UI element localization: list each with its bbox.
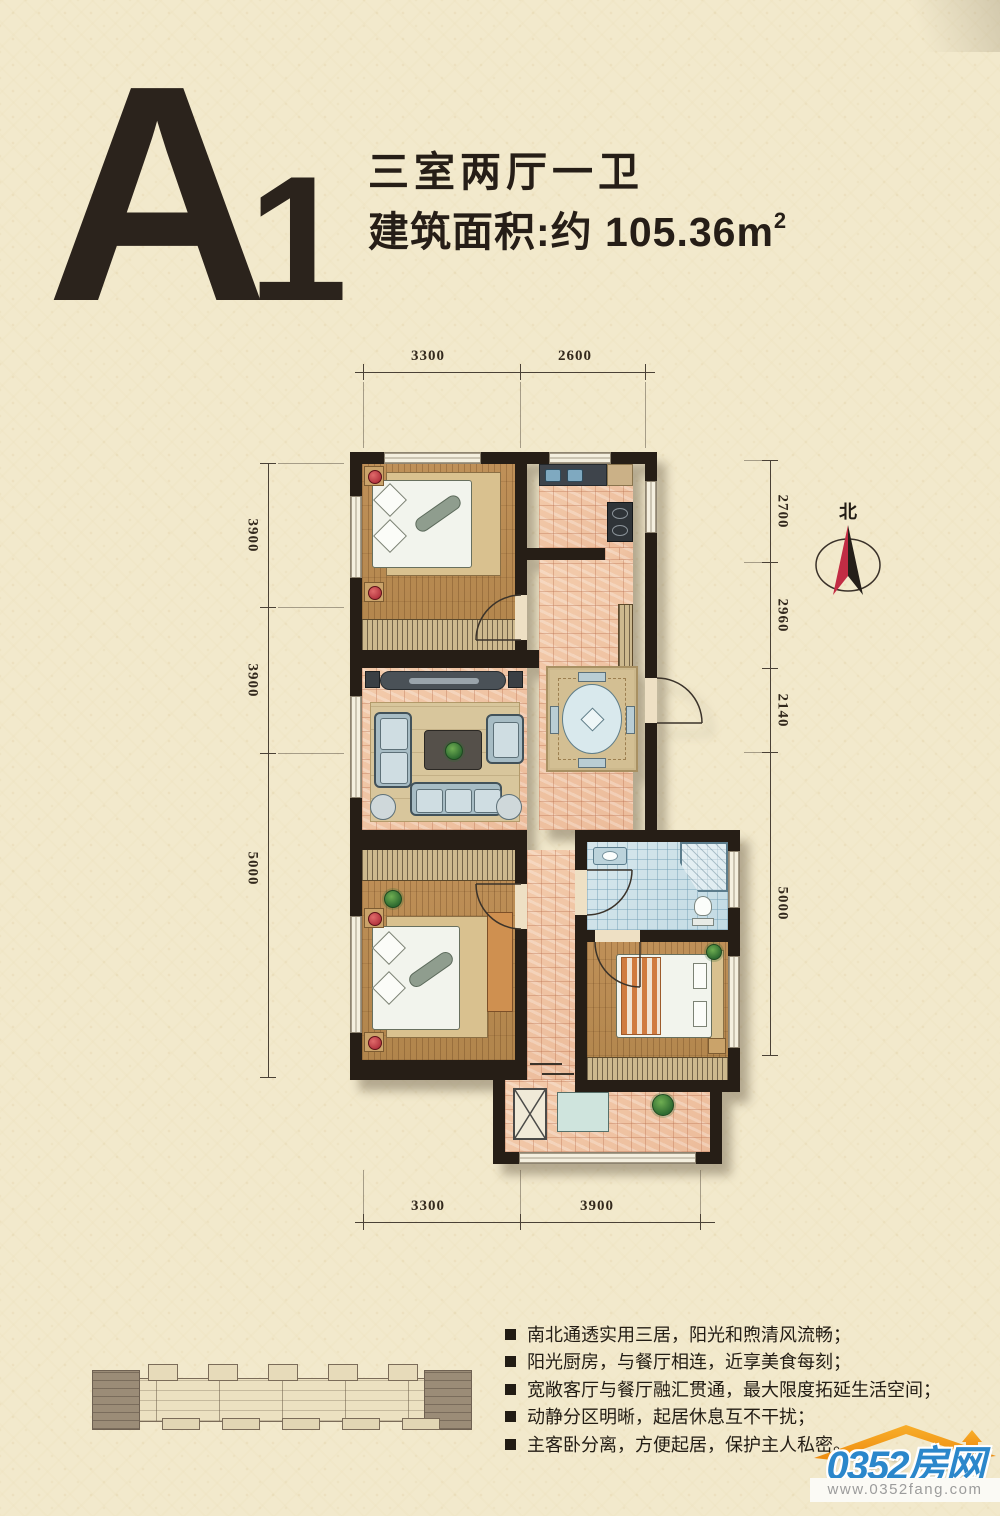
dim-tick bbox=[762, 562, 778, 563]
dim-tick bbox=[260, 1077, 276, 1078]
dim-extension bbox=[363, 382, 364, 448]
dim-extension bbox=[278, 463, 344, 464]
dim-right-3: 2140 bbox=[774, 681, 791, 741]
feature-item: 阳光厨房，与餐厅相连，近享美食每刻； bbox=[505, 1353, 985, 1372]
porch bbox=[342, 1418, 380, 1430]
dim-line-right bbox=[770, 460, 771, 1055]
dim-left-3: 5000 bbox=[244, 839, 261, 899]
dim-extension bbox=[520, 1170, 521, 1216]
porch bbox=[222, 1418, 260, 1430]
floor-plan bbox=[350, 452, 740, 1162]
dim-tick bbox=[645, 364, 646, 380]
compass-north-label: 北 bbox=[808, 503, 888, 521]
building-body bbox=[92, 1378, 472, 1422]
dim-tick bbox=[762, 1055, 778, 1056]
logo-url: www.0352fang.com bbox=[810, 1478, 1000, 1502]
stair-core bbox=[268, 1364, 298, 1381]
stair-core bbox=[388, 1364, 418, 1381]
dim-bottom-2: 3900 bbox=[580, 1198, 614, 1215]
feature-item: 宽敞客厅与餐厅融汇贯通，最大限度拓延生活空间； bbox=[505, 1381, 985, 1400]
dim-extension bbox=[278, 753, 344, 754]
dim-extension bbox=[278, 607, 344, 608]
dim-tick bbox=[260, 463, 276, 464]
building-area: 建筑面积:约 105.36m2 bbox=[368, 198, 787, 258]
feature-text: 南北通透实用三居，阳光和煦清风流畅； bbox=[527, 1326, 851, 1345]
dim-tick bbox=[260, 607, 276, 608]
stair-core bbox=[208, 1364, 238, 1381]
porch bbox=[162, 1418, 200, 1430]
feature-text: 宽敞客厅与餐厅融汇贯通，最大限度拓延生活空间； bbox=[527, 1381, 941, 1400]
square-bullet-icon bbox=[505, 1411, 516, 1422]
dim-right-1: 2700 bbox=[774, 482, 791, 542]
feature-item: 南北通透实用三居，阳光和煦清风流畅； bbox=[505, 1326, 985, 1345]
feature-text: 阳光厨房，与餐厅相连，近享美食每刻； bbox=[527, 1353, 851, 1372]
plan-code-number: 1 bbox=[248, 150, 347, 328]
dim-extension bbox=[700, 1170, 701, 1216]
dim-extension bbox=[744, 752, 762, 753]
dim-tick bbox=[762, 752, 778, 753]
dim-tick bbox=[363, 364, 364, 380]
square-bullet-icon bbox=[505, 1384, 516, 1395]
plan-code-letter: A bbox=[46, 40, 262, 348]
dim-top-2: 2600 bbox=[558, 348, 592, 365]
porch bbox=[282, 1418, 320, 1430]
layout-summary: 三室两厅一卫 bbox=[368, 138, 644, 198]
stair-core bbox=[148, 1364, 178, 1381]
porch bbox=[402, 1418, 440, 1430]
feature-text: 动静分区明晰，起居休息互不干扰； bbox=[527, 1408, 815, 1427]
dim-extension bbox=[744, 562, 762, 563]
dim-top-1: 3300 bbox=[411, 348, 445, 365]
building-end-cap bbox=[92, 1370, 140, 1430]
dim-right-2: 2960 bbox=[774, 586, 791, 646]
dim-bottom-1: 3300 bbox=[411, 1198, 445, 1215]
building-plate-thumbnail bbox=[92, 1356, 472, 1448]
dim-line-top bbox=[355, 372, 655, 373]
area-superscript: 2 bbox=[774, 208, 787, 233]
area-text: 建筑面积:约 105.36m bbox=[368, 209, 774, 255]
page-curl-shadow bbox=[850, 0, 1000, 52]
square-bullet-icon bbox=[505, 1439, 516, 1450]
dim-tick bbox=[260, 753, 276, 754]
north-arrow-icon bbox=[808, 521, 888, 607]
dim-extension bbox=[363, 1170, 364, 1216]
flyer-page: { "page": {"background": "#f2e9cc"}, "he… bbox=[0, 0, 1000, 1516]
dim-extension bbox=[744, 460, 762, 461]
feature-text: 主客卧分离，方便起居，保护主人私密。 bbox=[527, 1436, 851, 1455]
dim-tick bbox=[700, 1214, 701, 1230]
compass: 北 bbox=[808, 503, 888, 619]
dim-tick bbox=[520, 1214, 521, 1230]
dim-left-1: 3900 bbox=[244, 506, 261, 566]
square-bullet-icon bbox=[505, 1329, 516, 1340]
square-bullet-icon bbox=[505, 1356, 516, 1367]
dim-line-left bbox=[268, 463, 269, 1077]
dim-tick bbox=[363, 1214, 364, 1230]
plan-code: A 1 bbox=[46, 40, 347, 348]
door-swing-arcs bbox=[350, 452, 740, 1162]
dim-right-4: 5000 bbox=[774, 874, 791, 934]
dim-extension bbox=[645, 382, 646, 448]
dim-extension bbox=[520, 382, 521, 448]
dim-tick bbox=[520, 364, 521, 380]
dim-line-bottom bbox=[355, 1222, 715, 1223]
dim-left-2: 3900 bbox=[244, 651, 261, 711]
stair-core bbox=[328, 1364, 358, 1381]
dim-tick bbox=[762, 668, 778, 669]
dim-tick bbox=[762, 460, 778, 461]
